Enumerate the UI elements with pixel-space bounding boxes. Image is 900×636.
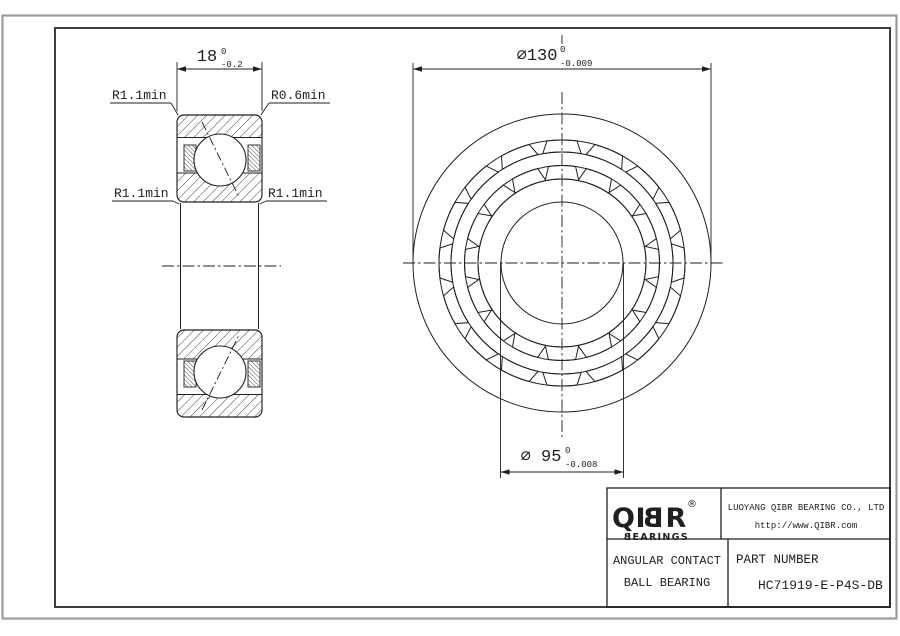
cage-pocket	[632, 214, 657, 247]
bore-arrowhead-left	[501, 469, 510, 474]
logo-text-mirrored-b: B	[642, 503, 663, 534]
title-block: QI B R ® B EARINGS LUOYANG QIBR BEARING …	[607, 488, 890, 607]
engineering-drawing-sheet: 18 0 -0.2 R1.1min R0.6min R1.1min R1.1mi…	[0, 0, 900, 636]
od-arrowhead-left	[413, 66, 422, 71]
cage-pocket	[484, 309, 516, 341]
od-dimension-value: ⌀130	[517, 47, 558, 66]
registered-trademark-icon: ®	[687, 499, 697, 510]
product-type-line2: BALL BEARING	[624, 576, 710, 590]
cage-pocket	[578, 333, 611, 358]
cage-pocket	[501, 357, 538, 382]
company-website: http://www.QIBR.com	[755, 521, 858, 531]
cage-section-top-right	[248, 145, 260, 171]
part-number-value: HC71919-E-P4S-DB	[758, 578, 883, 593]
cage-pocket	[501, 144, 538, 169]
cage-pocket	[632, 279, 657, 312]
product-type-line1: ANGULAR CONTACT	[613, 554, 721, 568]
arrowhead-right	[253, 66, 262, 71]
cage-pocket	[468, 214, 493, 247]
cage-pocket	[586, 144, 623, 169]
section-top-half	[177, 115, 262, 202]
fillet-leader-mid-left	[173, 201, 179, 204]
fillet-label-top-right: R0.6min	[271, 88, 326, 103]
bore-arrowhead-right	[615, 469, 624, 474]
company-name: LUOYANG QIBR BEARING CO., LTD	[728, 503, 885, 513]
fillet-leader-mid-right	[260, 201, 266, 204]
cage-pocket	[484, 185, 516, 217]
logo-text-qi: QI	[612, 503, 646, 534]
cage-pocket	[513, 333, 546, 358]
bore-dimension-value: ⌀ 95	[521, 448, 562, 467]
company-logo: QI B R ® B EARINGS	[612, 499, 697, 543]
ball-bottom	[194, 346, 246, 398]
cage-pocket	[656, 202, 681, 239]
cage-section-bottom-right	[248, 361, 260, 387]
od-dimension-tol-upper: 0	[560, 45, 565, 55]
cage-pocket	[578, 169, 611, 194]
bore-dimension-tol-lower: -0.008	[565, 460, 597, 470]
od-dimension-tol-lower: -0.009	[560, 59, 592, 69]
logo-text-r: R	[666, 503, 687, 534]
fillet-label-top-left: R1.1min	[112, 88, 167, 103]
cage-pocket	[513, 169, 546, 194]
arrowhead-left	[177, 66, 186, 71]
section-bottom-half	[177, 330, 262, 417]
logo-sub-text: EARINGS	[633, 532, 689, 543]
ball-top	[194, 134, 246, 186]
cage-pocket	[608, 185, 640, 217]
bore-dimension-tol-upper: 0	[565, 446, 570, 456]
cage-pocket	[443, 287, 468, 324]
width-dimension-tol-upper: 0	[221, 47, 226, 57]
drawing-canvas: 18 0 -0.2 R1.1min R0.6min R1.1min R1.1mi…	[0, 0, 900, 636]
fillet-label-mid-right: R1.1min	[268, 186, 323, 201]
cage-pocket	[656, 287, 681, 324]
width-dimension-tol-lower: -0.2	[221, 60, 243, 70]
cage-pocket	[468, 279, 493, 312]
cage-pocket	[608, 309, 640, 341]
width-dimension-value: 18	[197, 48, 217, 67]
cage-pocket	[443, 202, 468, 239]
logo-sub-mirrored-b: B	[622, 532, 631, 543]
front-view: ⌀130 0 -0.009 ⌀ 95 0 -0.008	[403, 35, 723, 478]
od-arrowhead-right	[702, 66, 711, 71]
cage-pocket	[586, 357, 623, 382]
section-view: 18 0 -0.2 R1.1min R0.6min R1.1min R1.1mi…	[110, 47, 330, 417]
part-number-label: PART NUMBER	[736, 553, 819, 567]
fillet-label-mid-left: R1.1min	[114, 186, 169, 201]
